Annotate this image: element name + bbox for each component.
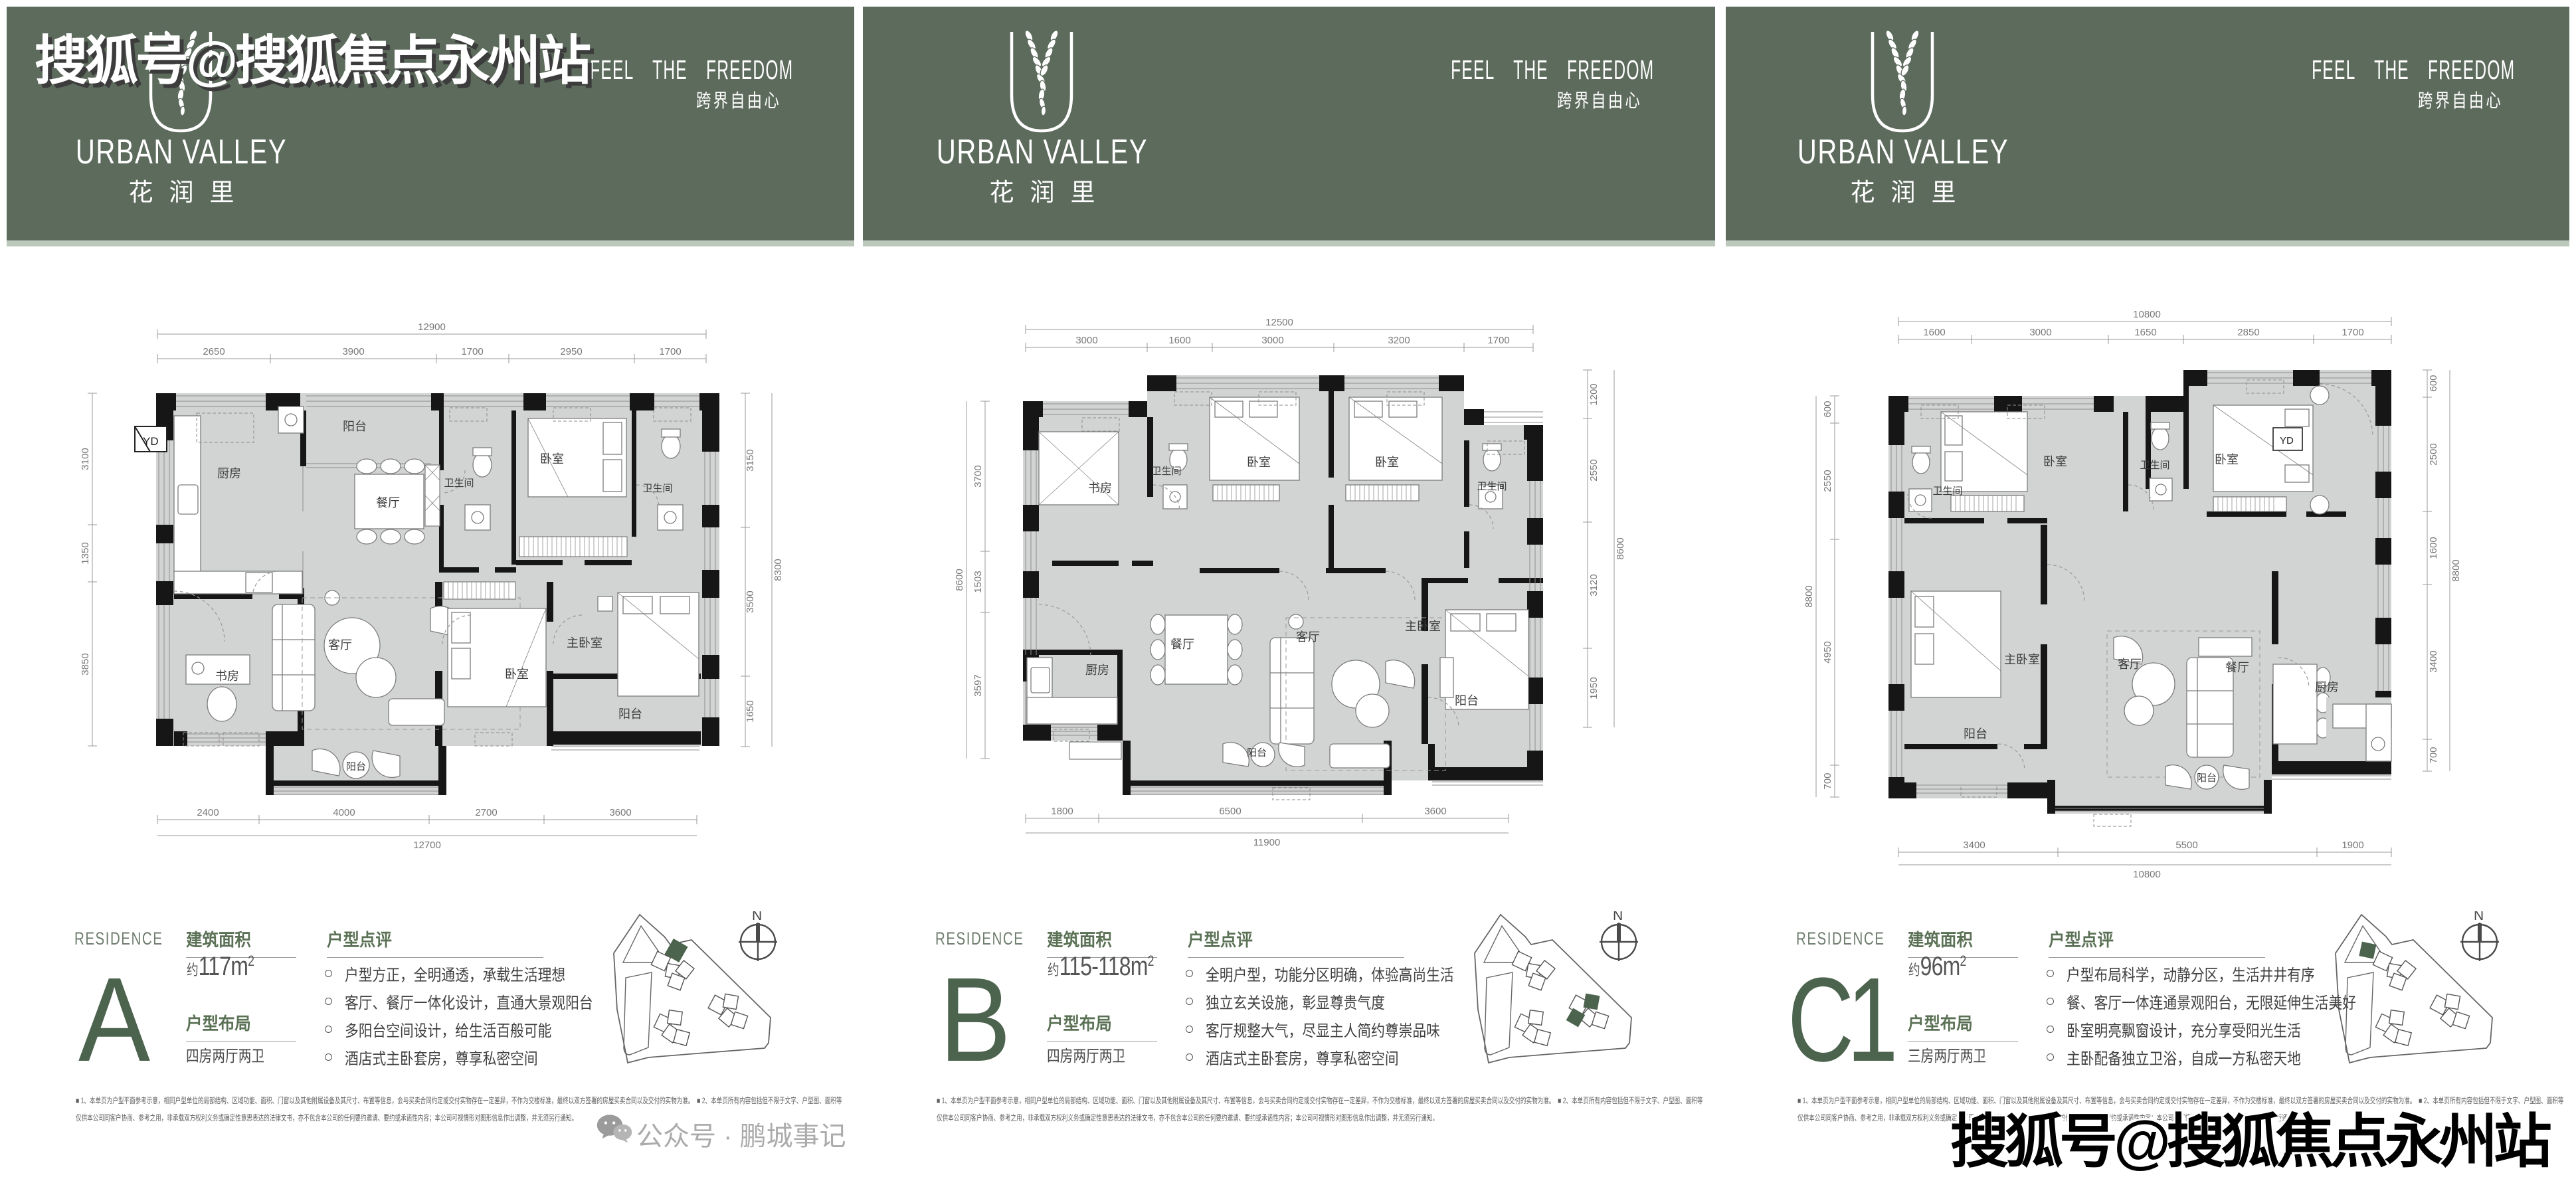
svg-text:3500: 3500 [745,590,756,612]
svg-text:卧室: 卧室 [540,452,564,466]
svg-text:600: 600 [1822,401,1833,417]
svg-text:餐厅: 餐厅 [2225,661,2249,674]
svg-text:1650: 1650 [745,700,756,722]
svg-text:1650: 1650 [2134,327,2156,338]
svg-text:1350: 1350 [80,542,91,564]
svg-text:3900: 3900 [342,346,364,357]
svg-text:3000: 3000 [1075,335,1097,346]
svg-text:卫生间: 卫生间 [444,478,474,489]
svg-text:3120: 3120 [1588,574,1600,596]
svg-text:客厅: 客厅 [328,638,352,652]
svg-text:2550: 2550 [1588,459,1600,481]
svg-text:3597: 3597 [972,674,984,696]
svg-text:3200: 3200 [1388,335,1410,346]
svg-text:600: 600 [2428,375,2439,391]
svg-text:阳台: 阳台 [1964,727,1987,741]
svg-text:1600: 1600 [1923,327,1945,338]
svg-text:厨房: 厨房 [1085,664,1109,677]
svg-text:2700: 2700 [475,807,497,818]
svg-text:8300: 8300 [773,559,784,581]
svg-text:3700: 3700 [972,465,984,487]
svg-text:6500: 6500 [1219,806,1241,817]
svg-text:2500: 2500 [2428,443,2439,465]
svg-text:1200: 1200 [1588,383,1600,405]
svg-text:11900: 11900 [1253,837,1281,848]
svg-text:卧室: 卧室 [2215,453,2239,466]
svg-text:1800: 1800 [1051,806,1073,817]
svg-text:书房: 书房 [215,670,239,683]
svg-text:3100: 3100 [80,448,91,470]
svg-text:8800: 8800 [2450,559,2462,581]
svg-text:1503: 1503 [972,571,984,592]
svg-text:700: 700 [2428,747,2439,763]
svg-text:10800: 10800 [2133,309,2161,320]
svg-text:客厅: 客厅 [1296,630,1320,644]
svg-text:1700: 1700 [659,346,681,357]
svg-text:2400: 2400 [197,807,219,818]
svg-text:客厅: 客厅 [2118,658,2142,671]
svg-text:卫生间: 卫生间 [2140,460,2169,471]
svg-text:厨房: 厨房 [217,467,241,480]
svg-text:卫生间: 卫生间 [642,483,672,494]
svg-text:1950: 1950 [1588,677,1600,699]
svg-text:2850: 2850 [2237,327,2259,338]
svg-text:8800: 8800 [1803,585,1815,607]
svg-text:卧室: 卧室 [505,668,529,681]
svg-text:餐厅: 餐厅 [1170,638,1194,651]
svg-text:阳台: 阳台 [346,761,366,772]
svg-text:厨房: 厨房 [2315,681,2339,694]
svg-text:卫生间: 卫生间 [1932,486,1962,497]
svg-text:餐厅: 餐厅 [376,496,400,509]
svg-text:卧室: 卧室 [1247,456,1271,469]
svg-text:8600: 8600 [954,569,965,590]
svg-text:卫生间: 卫生间 [1477,481,1507,492]
svg-text:3600: 3600 [609,807,631,818]
svg-text:主卧室: 主卧室 [2004,653,2040,666]
svg-text:12500: 12500 [1265,317,1293,328]
svg-text:YD: YD [143,435,159,448]
svg-text:4000: 4000 [333,807,355,818]
svg-text:阳台: 阳台 [2197,772,2217,784]
svg-text:3400: 3400 [1963,840,1985,851]
svg-text:8600: 8600 [1615,537,1626,559]
svg-text:4950: 4950 [1822,641,1833,663]
svg-text:阳台: 阳台 [618,707,642,721]
svg-text:主卧室: 主卧室 [567,636,602,650]
svg-text:1700: 1700 [1487,335,1509,346]
svg-text:阳台: 阳台 [1247,747,1267,759]
svg-text:3150: 3150 [745,449,756,471]
svg-text:3850: 3850 [80,653,91,675]
svg-text:700: 700 [1822,772,1833,789]
svg-text:卫生间: 卫生间 [1151,466,1181,477]
svg-text:卧室: 卧室 [1375,456,1399,469]
svg-text:1600: 1600 [1168,335,1190,346]
svg-text:3400: 3400 [2428,650,2439,672]
svg-text:3600: 3600 [1424,806,1446,817]
svg-text:2550: 2550 [1822,470,1833,492]
svg-text:1600: 1600 [2428,537,2439,559]
svg-text:阳台: 阳台 [1455,694,1479,707]
svg-text:1700: 1700 [461,346,483,357]
svg-text:2650: 2650 [203,346,225,357]
svg-text:3000: 3000 [2029,327,2051,338]
svg-text:主卧室: 主卧室 [1405,620,1441,633]
svg-text:2950: 2950 [560,346,582,357]
svg-text:YD: YD [2280,435,2294,446]
svg-text:1900: 1900 [2342,840,2363,851]
svg-text:1700: 1700 [2342,327,2363,338]
svg-text:5500: 5500 [2175,840,2197,851]
svg-text:卧室: 卧室 [2043,455,2067,468]
svg-text:12900: 12900 [418,321,446,333]
svg-text:10800: 10800 [2133,869,2161,880]
svg-text:3000: 3000 [1261,335,1283,346]
svg-text:书房: 书房 [1088,482,1112,495]
svg-text:12700: 12700 [413,840,441,851]
svg-text:阳台: 阳台 [343,420,367,433]
